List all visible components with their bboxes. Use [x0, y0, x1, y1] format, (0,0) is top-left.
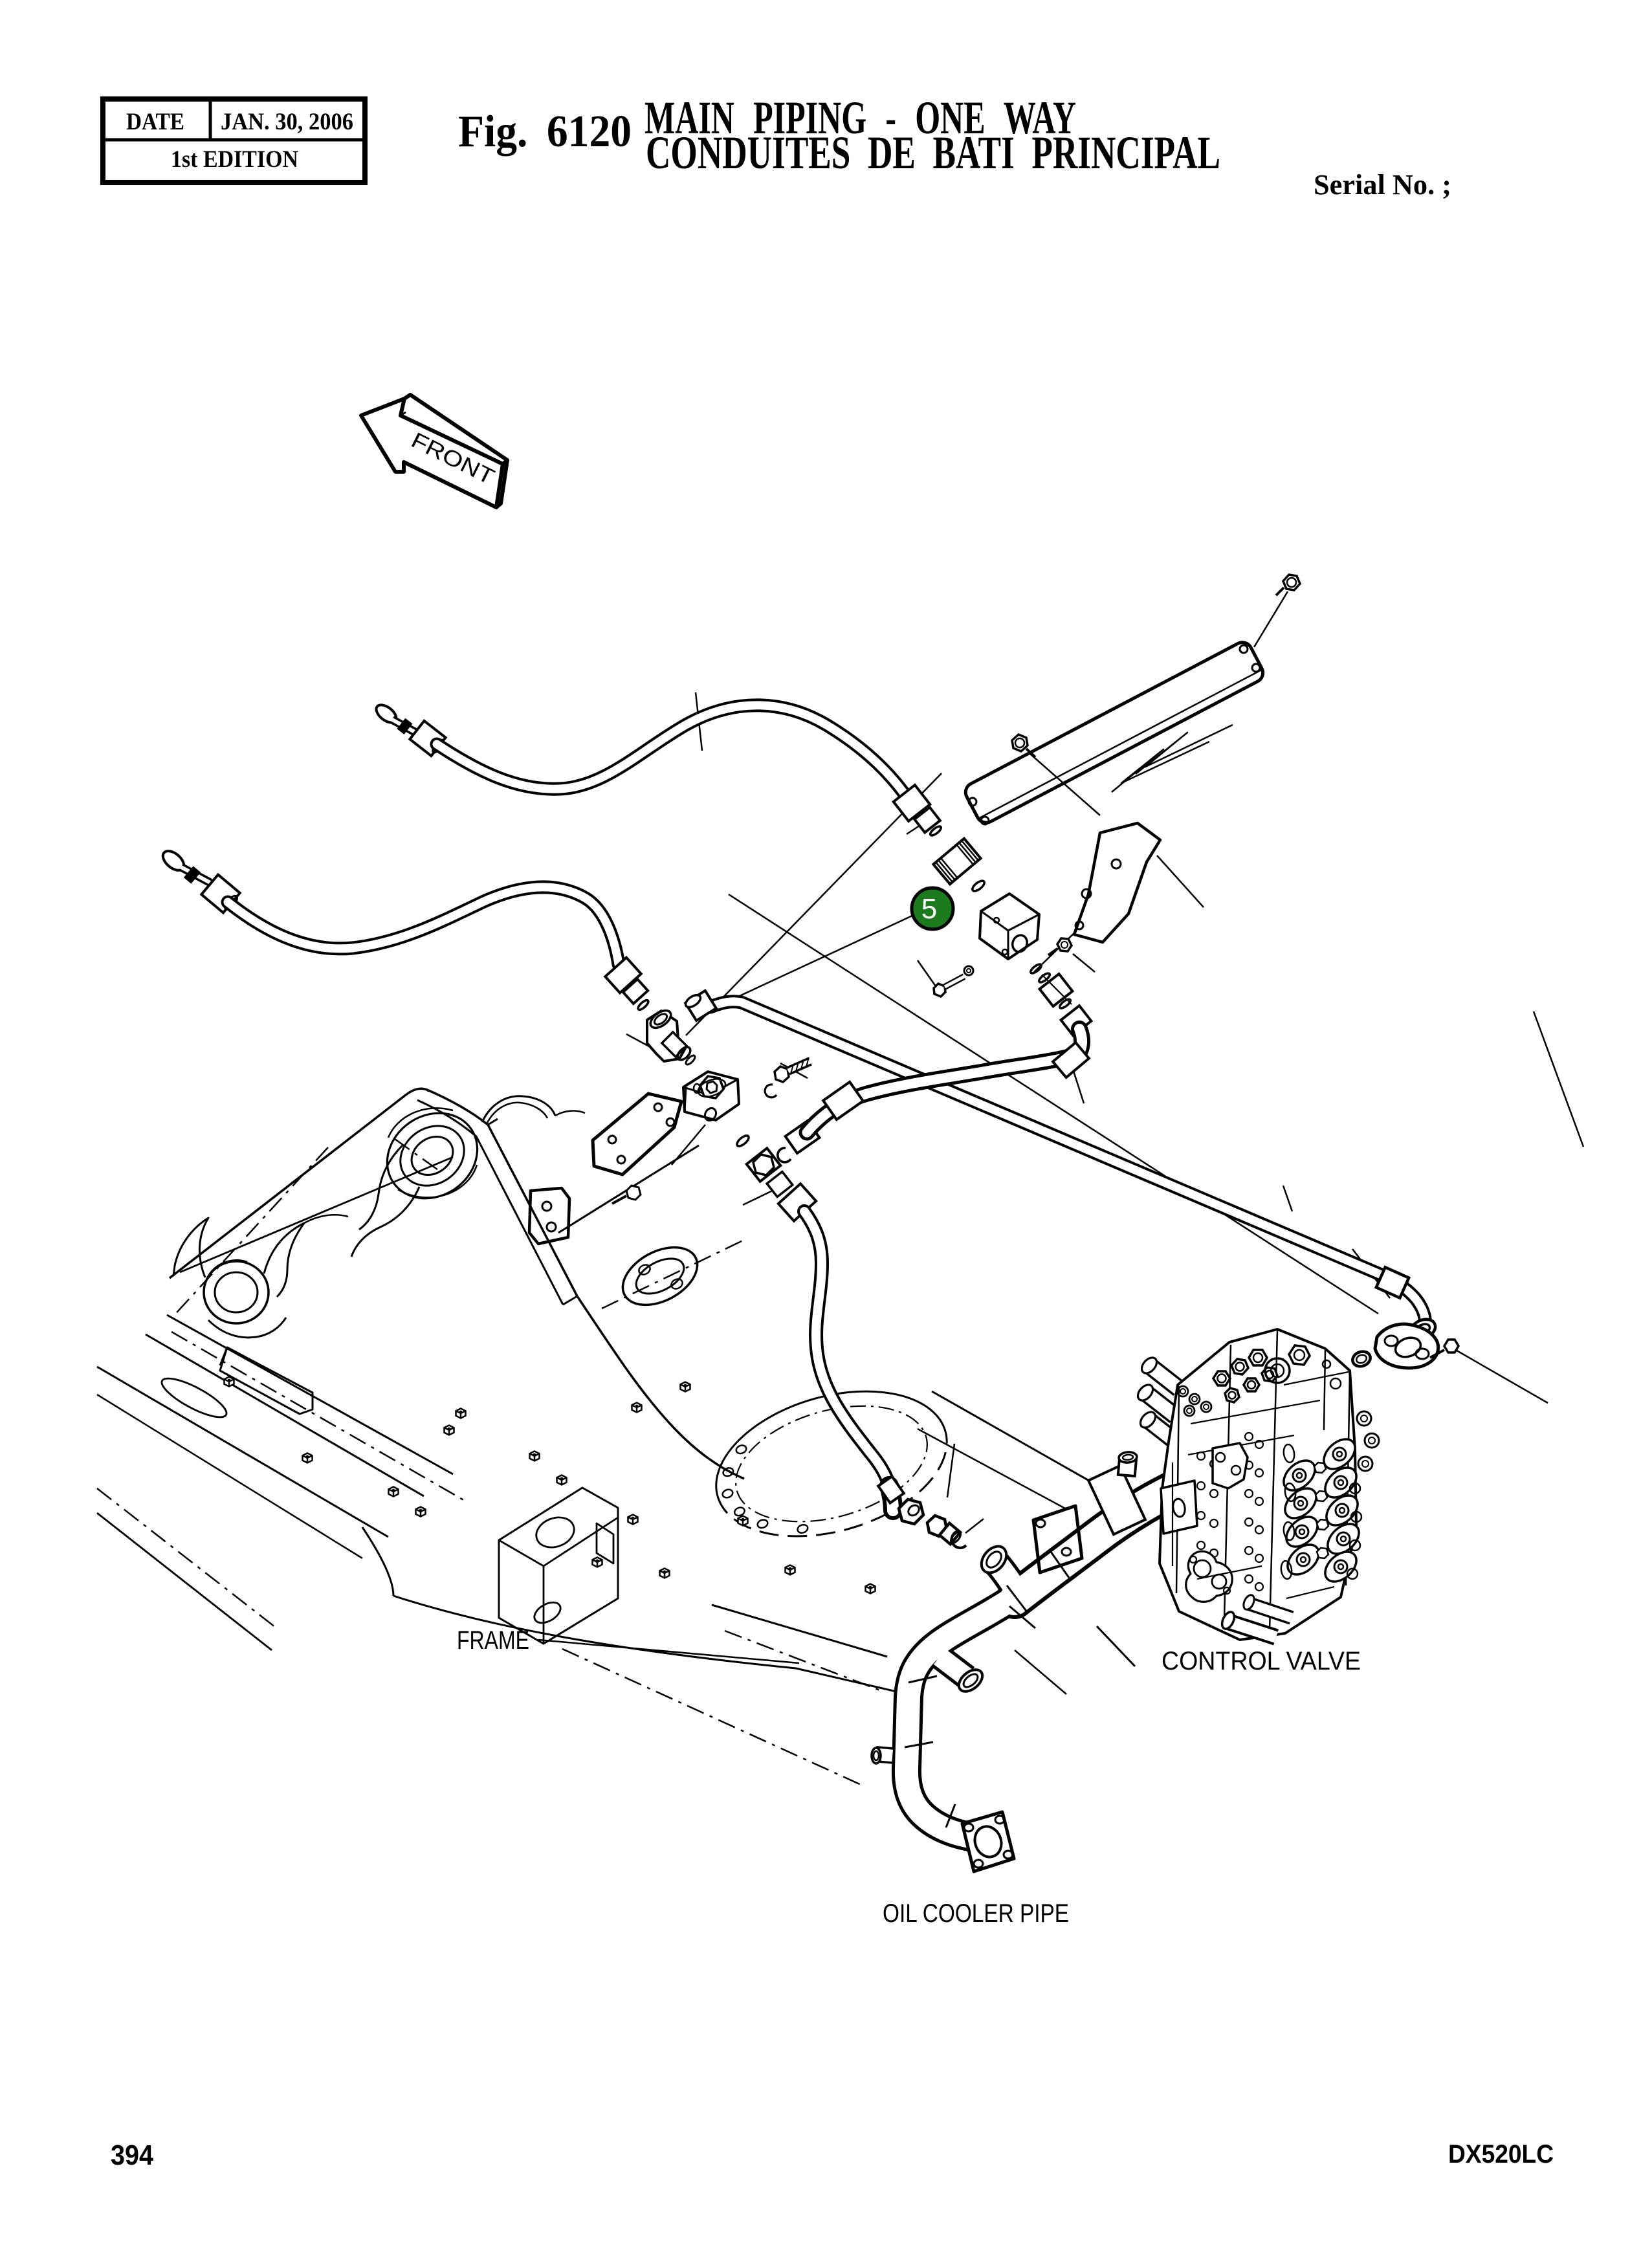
svg-text:Fig. 6120: Fig. 6120 [458, 107, 632, 157]
svg-text:1st EDITION: 1st EDITION [171, 146, 298, 173]
svg-text:DX520LC: DX520LC [1448, 2140, 1554, 2169]
svg-text:CONTROL VALVE: CONTROL VALVE [1162, 1647, 1361, 1675]
svg-text:CONDUITES DE BATI PRINCIPAL: CONDUITES DE BATI PRINCIPAL [646, 127, 1220, 179]
svg-text:FRAME: FRAME [457, 1626, 529, 1655]
svg-text:OIL COOLER PIPE: OIL COOLER PIPE [883, 1899, 1069, 1928]
svg-text:Serial No. ;: Serial No. ; [1314, 169, 1451, 201]
svg-text:DATE: DATE [126, 109, 184, 135]
svg-text:5: 5 [921, 893, 937, 925]
svg-text:JAN. 30, 2006: JAN. 30, 2006 [221, 109, 353, 135]
svg-text:394: 394 [111, 2139, 153, 2171]
